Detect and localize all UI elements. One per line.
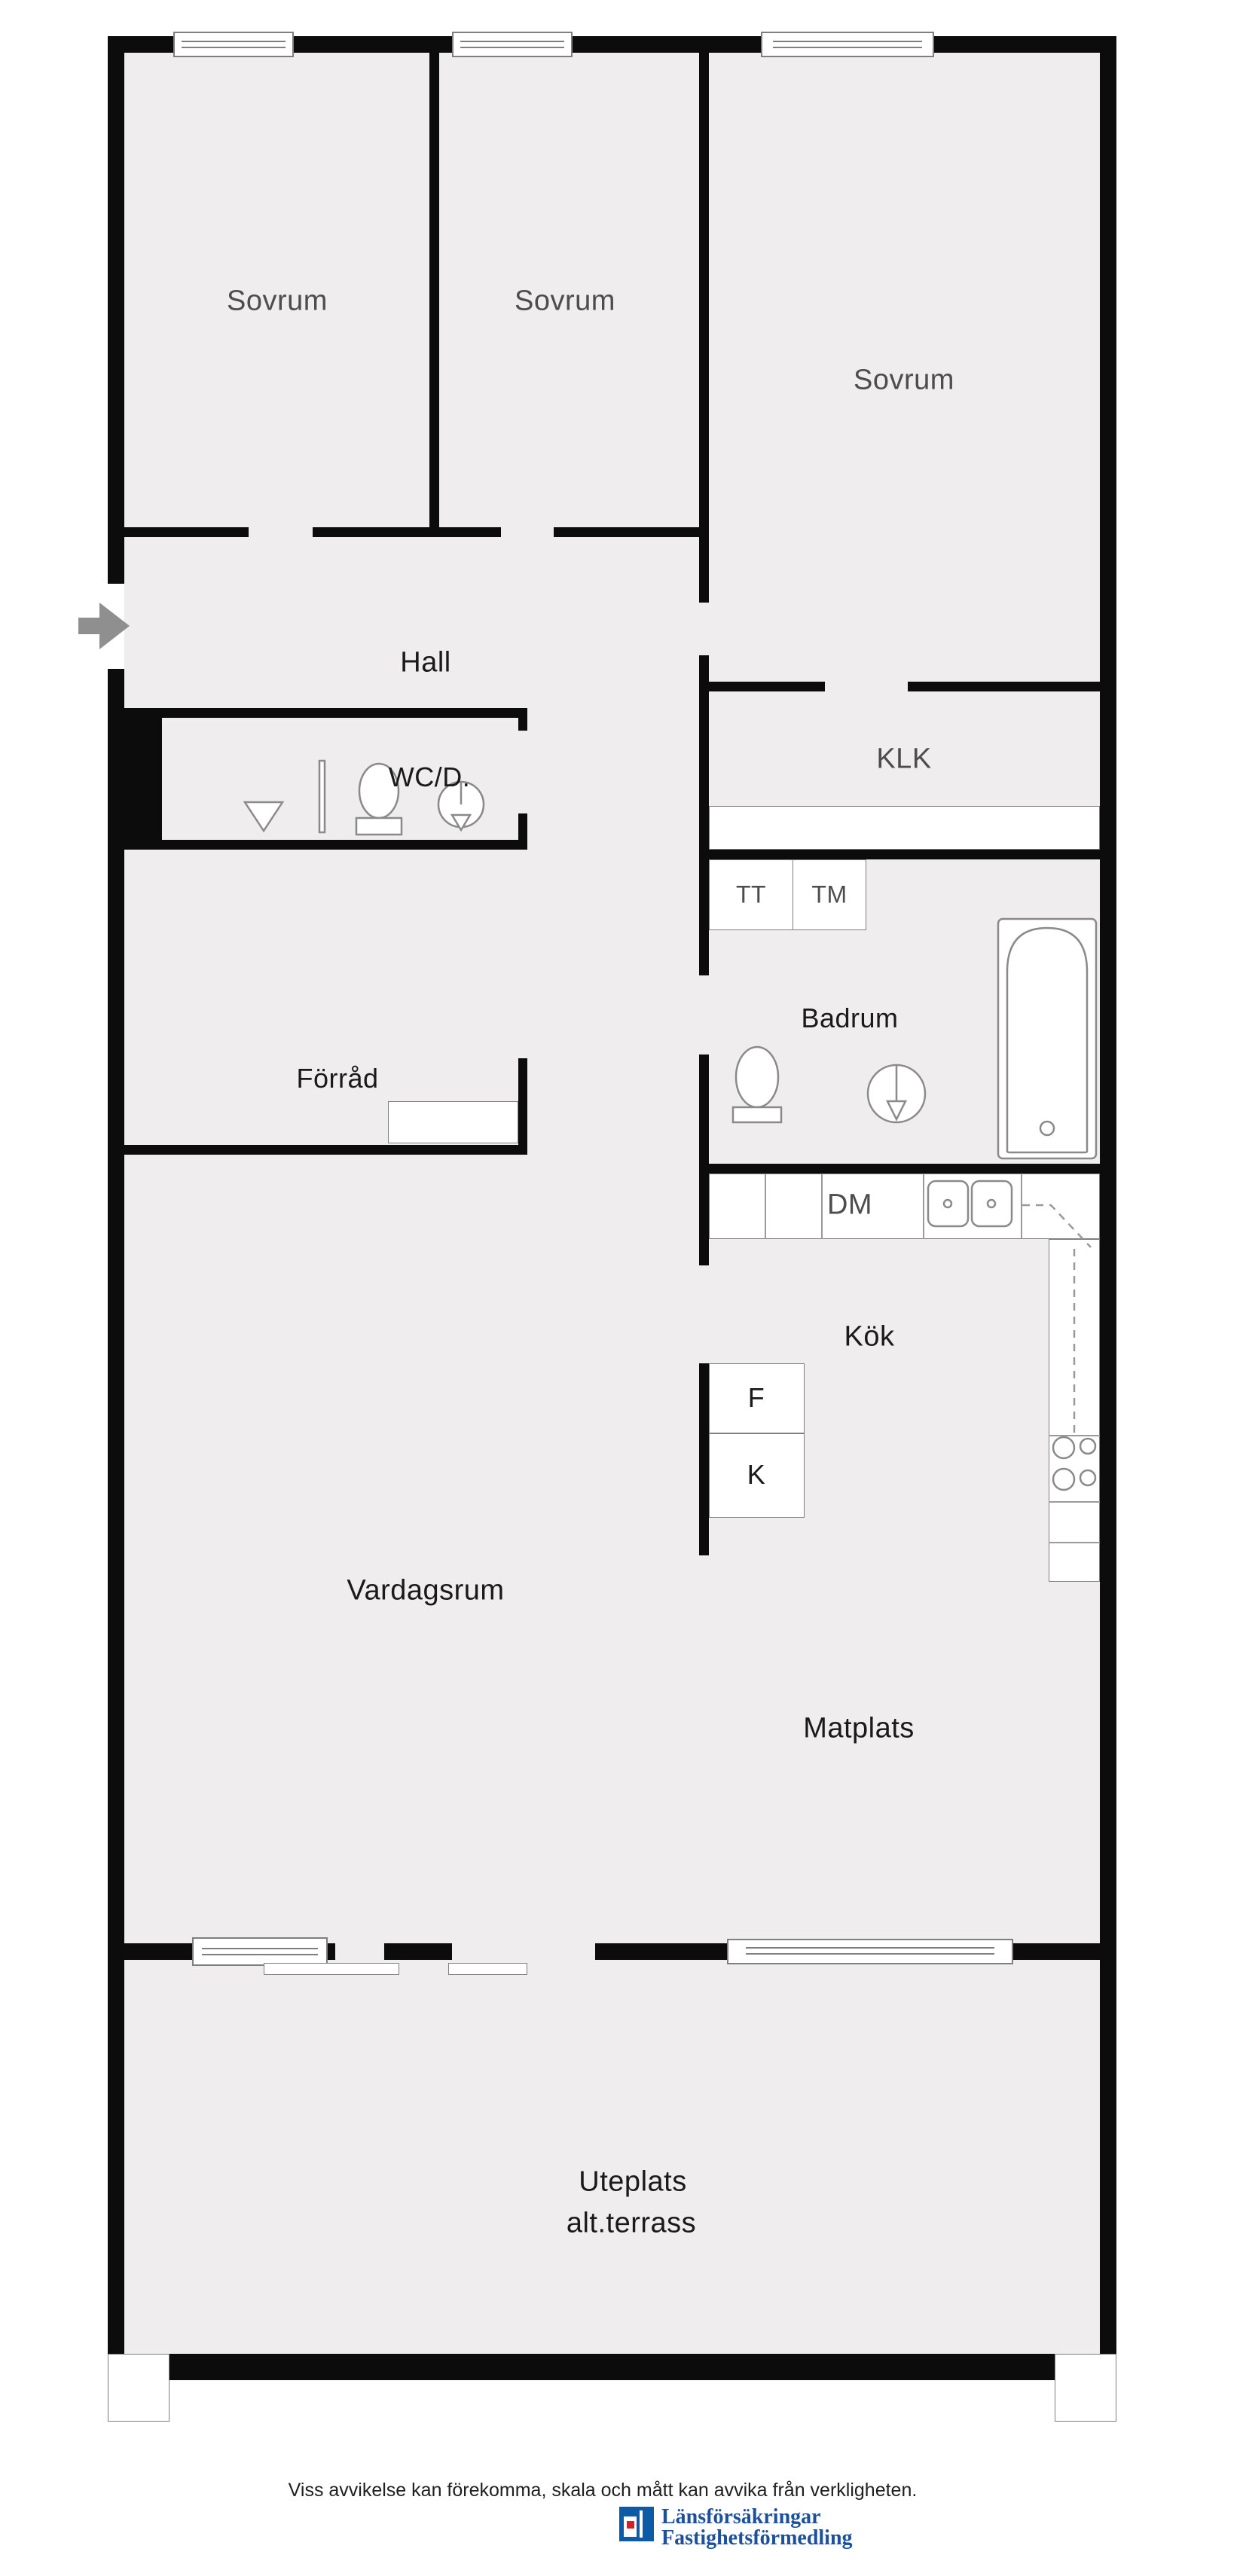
room-label-matplats: Matplats (803, 1713, 915, 1745)
appliance-label-dm: DM (827, 1189, 872, 1222)
appliance-label-k: K (747, 1459, 766, 1491)
appliance-label-tt: TT (736, 881, 766, 909)
room-label-forrad: Förråd (296, 1063, 378, 1094)
room-label-vardagsrum: Vardagsrum (347, 1575, 504, 1607)
sink-icon (928, 1181, 1012, 1226)
room-label-sovrum-1: Sovrum (227, 285, 328, 318)
disclaimer-text: Viss avvikelse kan förekomma, skala och … (0, 2480, 1205, 2501)
washbasin-icon (868, 1065, 925, 1122)
room-label-badrum: Badrum (801, 1003, 898, 1034)
shower-rail (319, 761, 325, 832)
brand-name-line1: Länsförsäkringar (661, 2507, 853, 2528)
appliance-label-tm: TM (811, 881, 847, 909)
room-label-kok: Kök (844, 1321, 895, 1354)
lansforsakringar-logo-icon (619, 2507, 654, 2541)
toilet-icon (733, 1047, 781, 1122)
bathtub-icon (998, 919, 1096, 1158)
room-label-wcd: WC/D. (389, 762, 470, 793)
room-label-klk: KLK (876, 743, 931, 776)
appliance-label-f: F (748, 1382, 765, 1414)
room-label-sovrum-3: Sovrum (854, 365, 954, 397)
room-label-hall: Hall (400, 647, 450, 679)
brand-name-line2: Fastighetsförmedling (661, 2528, 853, 2549)
floorplan-page: Sovrum Sovrum Sovrum Hall KLK WC/D. TT T… (0, 0, 1243, 2576)
shower-icon (245, 802, 282, 831)
brand-logo: Länsförsäkringar Fastighetsförmedling (619, 2507, 853, 2549)
room-label-uteplats-2: alt.terrass (567, 2208, 696, 2240)
stove-icon (1053, 1437, 1095, 1490)
counter-dashed-line (1022, 1205, 1091, 1433)
room-label-uteplats: Uteplats (579, 2166, 686, 2199)
room-label-sovrum-2: Sovrum (515, 285, 615, 318)
